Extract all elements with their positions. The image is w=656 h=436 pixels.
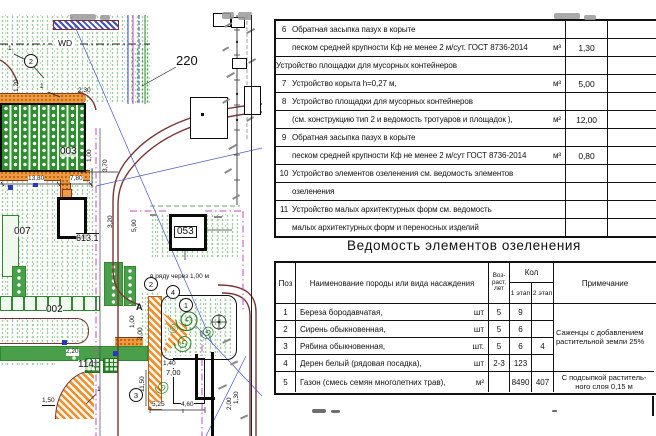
- works-row-note: [608, 147, 656, 164]
- works-row: малых архитектурных форм и переносных из…: [276, 219, 656, 236]
- greenery-notes: Саженцы с добавлением растительной земли…: [554, 304, 654, 393]
- header-stages: 1 этап 2 этап: [510, 283, 553, 303]
- works-row-qty: 1,30: [566, 39, 608, 56]
- object-label-613: 613.1: [76, 233, 99, 243]
- works-row-qty: [566, 219, 608, 236]
- dimension: 1: [97, 387, 101, 394]
- planting-bed: [161, 295, 237, 360]
- works-row-qty: 5,00: [566, 75, 608, 92]
- survey-marker: [33, 182, 38, 187]
- greenery-name-cell: Газон (смесь семян многолетних трав), м²: [296, 372, 489, 392]
- object-label-003: 003: [60, 147, 77, 157]
- works-row: Устройство площадки для мусорных контейн…: [276, 57, 656, 75]
- greenery-age: 5: [489, 304, 510, 320]
- works-row-note: [608, 183, 656, 200]
- drawing-sheet: 220 WD 003 007 002 053 114 613.1 A в ряд…: [0, 0, 656, 436]
- works-row-unit: м²: [549, 115, 561, 124]
- works-row-qty: [566, 201, 608, 218]
- area-label-220: 220: [176, 54, 198, 67]
- greenery-stage2-qty: 4: [532, 338, 554, 354]
- greenery-name-cell: Рябина обыкновенная, шт.: [296, 338, 489, 354]
- works-row: 10 Устройство элементов озеленения см. в…: [276, 165, 656, 183]
- object-label-114: 114: [78, 360, 94, 370]
- greenery-table: Поз Наименование породы или вида насажде…: [274, 261, 656, 395]
- works-row-number: 7: [276, 79, 292, 88]
- note-rows-1-4: Саженцы с добавлением растительной земли…: [554, 304, 654, 372]
- dimension: 1,00: [87, 149, 94, 162]
- survey-marker: [62, 340, 67, 345]
- works-description-cell: 8 Устройство площадки для мусорных конте…: [276, 93, 566, 110]
- works-row-text: озеленения: [292, 187, 334, 196]
- works-row-note: [608, 111, 656, 128]
- greenery-age: [489, 372, 510, 392]
- greenery-rows: 1 Береза бородавчатая, шт 5 9 2 Сирень о…: [276, 304, 554, 393]
- greenery-stage2-qty: [532, 304, 554, 320]
- greenery-stage1-qty: 8490: [510, 372, 532, 392]
- greenery-stage1-qty: 6: [510, 321, 532, 337]
- works-row-unit: м³: [549, 151, 561, 160]
- works-row-note: [608, 39, 656, 56]
- greenery-stage2-qty: [532, 355, 554, 371]
- dimension: 7,80: [70, 176, 83, 183]
- works-row-text: Устройство площадки для мусорных контейн…: [292, 97, 473, 106]
- works-row-text: Обратная засыпка пазух в корыте: [292, 25, 415, 34]
- greenery-name: Береза бородавчатая,: [300, 308, 383, 317]
- greenery-row: 3 Рябина обыкновенная, шт. 5 6 4: [276, 338, 554, 355]
- building: [244, 86, 261, 115]
- works-row-text: Устройство элементов озеленения см. ведо…: [292, 169, 513, 178]
- works-row-qty: [566, 165, 608, 182]
- works-row: 8 Устройство площадки для мусорных конте…: [276, 93, 656, 111]
- header-stage1: 1 этап: [510, 283, 532, 303]
- retaining-wall: [195, 354, 198, 400]
- works-row-number: 9: [276, 133, 292, 142]
- works-description-cell: 7 Устройство корыта h=0,27 м, м³: [276, 75, 566, 92]
- works-row-text: малых архитектурных форм и переносных из…: [292, 223, 479, 232]
- dimension: 3,70: [103, 159, 110, 172]
- works-row: 11 Устройство малых архитектурных форм с…: [276, 201, 656, 219]
- works-row-text: (см. конструкцию тип 2 и ведомость троту…: [292, 115, 513, 124]
- works-row-number: 6: [276, 25, 292, 34]
- cutoff-text-fragment: [312, 409, 326, 413]
- dimension: 5,25: [152, 402, 165, 409]
- tag-circle-2: 2: [144, 277, 158, 291]
- tag-circle-2: 2: [24, 54, 38, 68]
- dimension: 3,20: [108, 215, 115, 228]
- works-row-number: 10: [276, 169, 292, 178]
- works-description-cell: малых архитектурных форм и переносных из…: [276, 219, 566, 236]
- works-row-note: [608, 129, 656, 146]
- header-name: Наименование породы или вида насаждения: [296, 263, 489, 303]
- building-dot: [201, 113, 204, 116]
- works-description-cell: 6 Обратная засыпка пазух в корыте: [276, 21, 566, 38]
- retaining-wall: [211, 352, 214, 436]
- utility-risers: [128, 15, 145, 104]
- greenery-name-cell: Береза бородавчатая, шт: [296, 304, 489, 320]
- works-row: песком средней крупности Кф не менее 2 м…: [276, 147, 656, 165]
- works-row-qty: [566, 129, 608, 146]
- scan-artifact: [584, 15, 596, 20]
- table-border-fragment: [652, 396, 654, 416]
- dimension: 5,90: [132, 219, 139, 232]
- scan-artifact: [222, 12, 234, 19]
- greenery-stage2-qty: [532, 321, 554, 337]
- scan-artifact: [554, 13, 580, 19]
- works-description-cell: (см. конструкцию тип 2 и ведомость троту…: [276, 111, 566, 128]
- works-description-cell: 11 Устройство малых архитектурных форм с…: [276, 201, 566, 218]
- greenery-pos: 1: [276, 304, 296, 320]
- dimension: 13,80: [28, 176, 44, 183]
- section-label-a: A: [136, 303, 143, 312]
- greenery-age: 2-3: [489, 355, 510, 371]
- works-row-note: [608, 57, 656, 74]
- works-row-note: [608, 93, 656, 110]
- cutoff-text-fragment: [331, 410, 340, 413]
- works-row-note: [608, 165, 656, 182]
- works-row-text: Обратная засыпка пазух в корыте: [292, 133, 415, 142]
- header-stage2: 2 этап: [532, 283, 553, 303]
- greenery-name-cell: Дерен белый (рядовая посадка), шт: [296, 355, 489, 371]
- header-qty: Кол: [510, 263, 553, 283]
- plan-border: [251, 15, 252, 436]
- object-label-053: 053: [174, 226, 197, 238]
- dimension: 1,00: [130, 315, 137, 328]
- greenery-name: Дерен белый (рядовая посадка),: [300, 359, 422, 368]
- planting-note: в ряду через 1,00 м: [150, 274, 209, 281]
- works-description-cell: песком средней крупности Кф не менее 2 м…: [276, 147, 566, 164]
- works-row-text: Устройство малых архитектурных форм см. …: [292, 205, 492, 214]
- tag-circle-1: 1: [179, 298, 193, 312]
- works-row: озеленения: [276, 183, 656, 201]
- survey-marker: [8, 185, 13, 190]
- object-label-007: 007: [14, 227, 31, 237]
- works-row-unit: м³: [549, 43, 561, 52]
- works-row: песком средней крупности Кф не менее 2 м…: [276, 39, 656, 57]
- greenery-pos: 2: [276, 321, 296, 337]
- greenery-stage1-qty: 6: [510, 338, 532, 354]
- micro-annotation: [150, 214, 157, 216]
- header-qty-group: Кол 1 этап 2 этап: [510, 263, 554, 303]
- dimension: 7,00: [166, 369, 181, 377]
- greenery-row: 1 Береза бородавчатая, шт 5 9: [276, 304, 554, 321]
- greenery-table-title: Ведомость элементов озеленения: [274, 238, 654, 253]
- works-table-body: 6 Обратная засыпка пазух в корыте песком…: [276, 21, 656, 236]
- works-row-qty: [566, 57, 608, 74]
- cutoff-text-fragment: [552, 410, 557, 412]
- dimension: 1,20: [14, 79, 21, 92]
- greenery-unit: шт: [471, 359, 484, 368]
- works-row-unit: м³: [549, 79, 561, 88]
- dimension: 1: [40, 84, 44, 91]
- dimension: 4,60: [181, 402, 194, 409]
- header-age: Воз- раст, лет: [489, 263, 510, 303]
- greenery-unit: шт.: [470, 342, 484, 351]
- works-row-text: Устройство корыта h=0,27 м,: [292, 79, 397, 88]
- works-row-note: [608, 201, 656, 218]
- greenery-name: Сирень обыкновенная,: [300, 325, 386, 334]
- works-row-text: Устройство площадки для мусорных контейн…: [276, 61, 457, 70]
- works-description-cell: 10 Устройство элементов озеленения см. в…: [276, 165, 566, 182]
- works-row-number: 8: [276, 97, 292, 106]
- works-row-note: [608, 219, 656, 236]
- works-row-qty: [566, 183, 608, 200]
- greenery-pos: 4: [276, 355, 296, 371]
- tag-circle-4: 4: [166, 285, 180, 299]
- greenery-name: Газон (смесь семян многолетних трав),: [300, 378, 446, 387]
- greenery-age: 5: [489, 338, 510, 354]
- dimension: 2,20: [66, 349, 79, 356]
- header-note: Примечание: [554, 263, 656, 303]
- works-row: 6 Обратная засыпка пазух в корыте: [276, 21, 656, 39]
- header-pos: Поз: [276, 263, 296, 303]
- works-table: 6 Обратная засыпка пазух в корыте песком…: [274, 19, 656, 238]
- greenery-stage1-qty: 123: [510, 355, 532, 371]
- greenery-unit: шт: [471, 308, 484, 317]
- greenery-unit: м²: [473, 378, 484, 387]
- note-row-5: С подсыпкой раститель- ного слоя 0,15 м: [554, 372, 654, 393]
- works-row-qty: [566, 93, 608, 110]
- greenery-name-cell: Сирень обыкновенная, шт: [296, 321, 489, 337]
- greenery-table-header: Поз Наименование породы или вида насажде…: [276, 263, 656, 304]
- works-row-note: [608, 21, 656, 38]
- tag-circle-3: 3: [129, 388, 143, 402]
- building: [232, 58, 247, 69]
- dimension: 1,30: [234, 391, 241, 404]
- greenery-pos: 3: [276, 338, 296, 354]
- scan-artifact: [100, 15, 110, 20]
- works-row-text: песком средней крупности Кф не менее 2 м…: [292, 151, 526, 160]
- greenery-row: 4 Дерен белый (рядовая посадка), шт 2-3 …: [276, 355, 554, 372]
- greenery-name: Рябина обыкновенная,: [300, 342, 385, 351]
- scan-artifact: [70, 14, 96, 20]
- greenery-pos: 5: [276, 372, 296, 392]
- works-row-qty: 0,80: [566, 147, 608, 164]
- works-description-cell: 9 Обратная засыпка пазух в корыте: [276, 129, 566, 146]
- works-row: 7 Устройство корыта h=0,27 м, м³ 5,00: [276, 75, 656, 93]
- dimension: 2,00: [227, 397, 234, 410]
- greenery-unit: шт: [471, 325, 484, 334]
- dimension: 1: [8, 46, 12, 53]
- works-row-qty: [566, 21, 608, 38]
- scan-artifact: [238, 12, 252, 20]
- dimension: 2,30: [78, 88, 91, 95]
- works-row-text: песком средней крупности Кф не менее 2 м…: [292, 43, 528, 52]
- greenery-age: 5: [489, 321, 510, 337]
- object-label-002: 002: [46, 305, 63, 315]
- micro-annotation: [214, 216, 222, 218]
- survey-marker: [113, 351, 118, 356]
- utility-label-wd: WD: [56, 39, 74, 48]
- greenery-stage2-qty: 407: [532, 372, 554, 392]
- greenery-stage1-qty: 9: [510, 304, 532, 320]
- dimension: 3,00: [138, 327, 145, 340]
- greenery-row: 2 Сирень обыкновенная, шт 5 6: [276, 321, 554, 338]
- greenery-row: 5 Газон (смесь семян многолетних трав), …: [276, 372, 554, 392]
- works-row-qty: 12,00: [566, 111, 608, 128]
- plan-linework: [0, 0, 262, 436]
- works-description-cell: песком средней крупности Кф не менее 2 м…: [276, 39, 566, 56]
- works-row: (см. конструкцию тип 2 и ведомость троту…: [276, 111, 656, 129]
- site-plan: 220 WD 003 007 002 053 114 613.1 A в ряд…: [0, 0, 262, 436]
- works-description-cell: озеленения: [276, 183, 566, 200]
- dimension: 1,50: [42, 398, 55, 406]
- dimension: 1,40: [163, 361, 176, 368]
- works-description-cell: Устройство площадки для мусорных контейн…: [276, 57, 566, 74]
- works-row-number: 11: [276, 205, 292, 214]
- greenery-table-body: 1 Береза бородавчатая, шт 5 9 2 Сирень о…: [276, 304, 656, 393]
- works-row: 9 Обратная засыпка пазух в корыте: [276, 129, 656, 147]
- works-row-note: [608, 75, 656, 92]
